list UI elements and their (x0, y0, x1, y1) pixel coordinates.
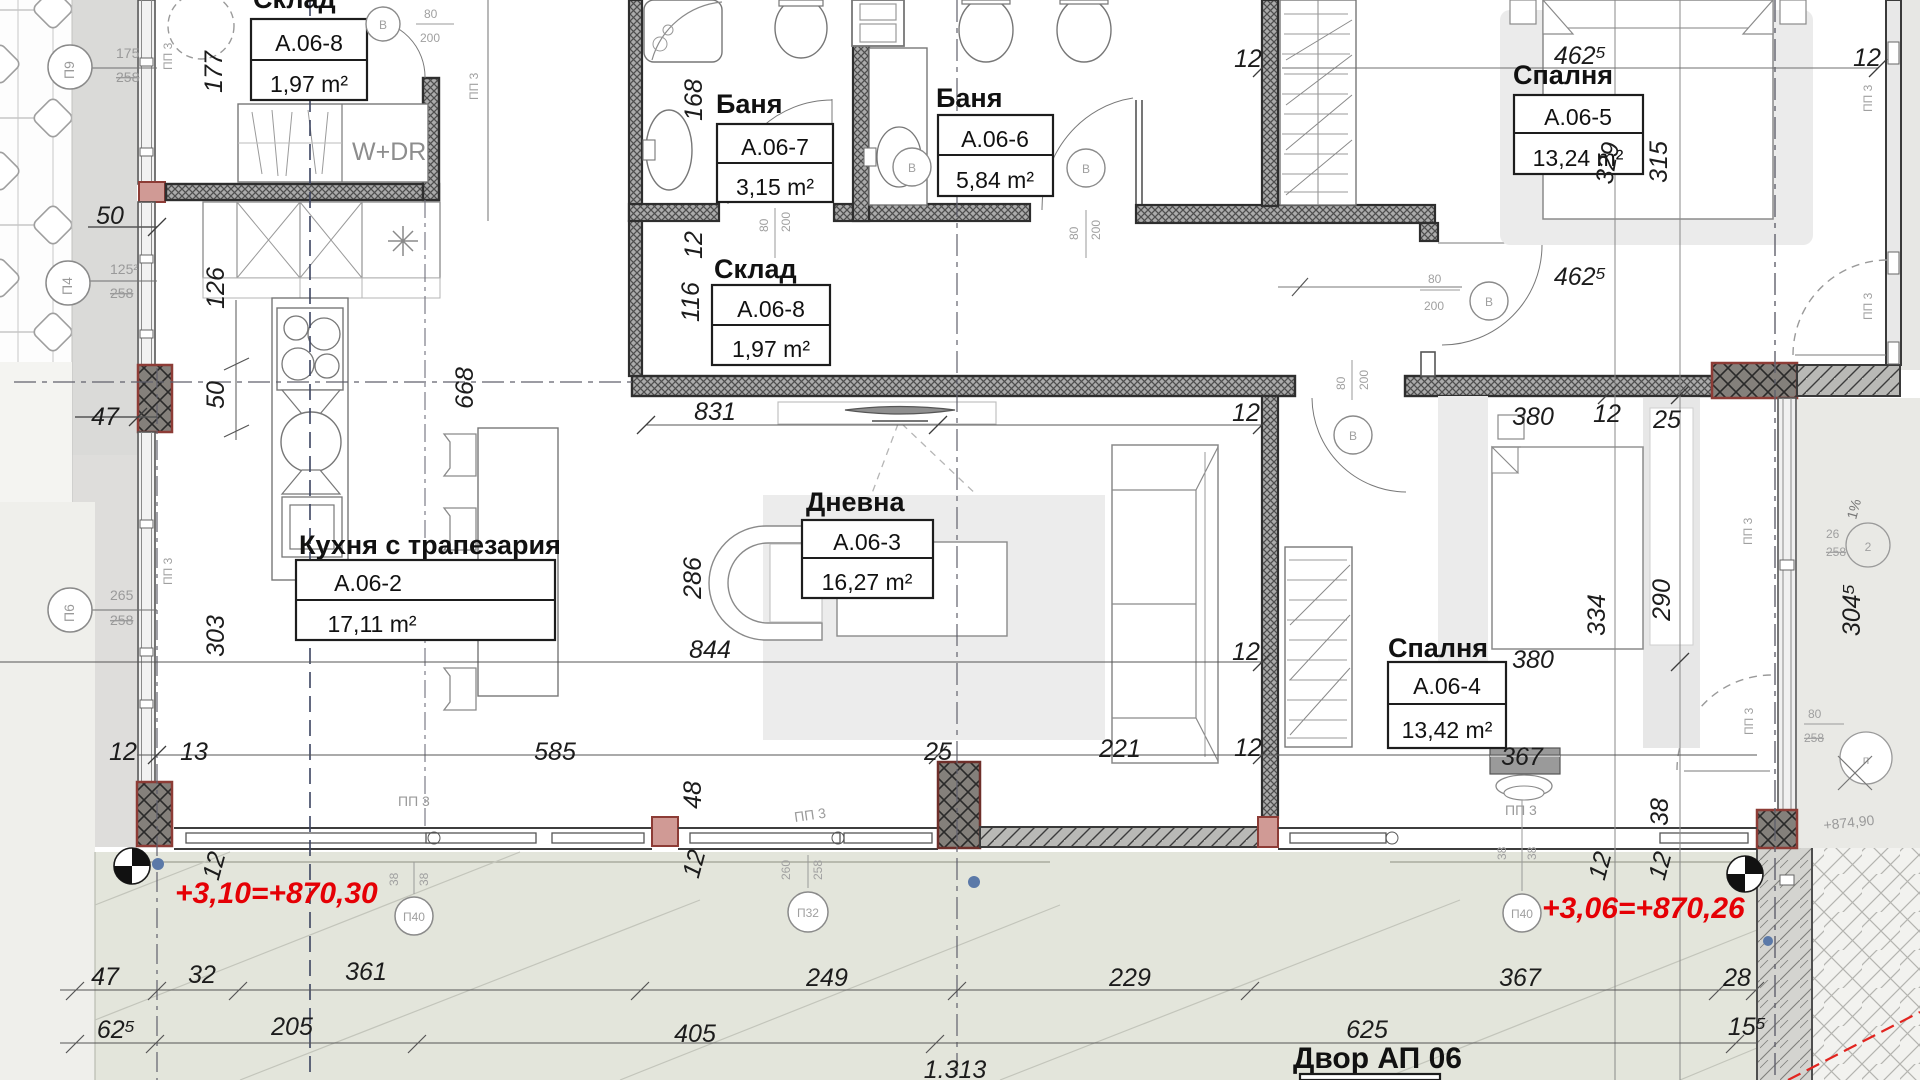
svg-text:Двор АП 06: Двор АП 06 (1293, 1042, 1462, 1075)
svg-text:258: 258 (1826, 545, 1846, 559)
svg-text:462⁵: 462⁵ (1554, 263, 1606, 291)
svg-text:П6: П6 (61, 604, 77, 622)
svg-text:315: 315 (1645, 141, 1673, 183)
svg-text:200: 200 (1424, 299, 1444, 313)
svg-text:126: 126 (202, 267, 230, 309)
svg-text:12: 12 (1234, 45, 1262, 73)
svg-text:380: 380 (1512, 646, 1554, 674)
svg-text:229: 229 (1108, 964, 1151, 992)
svg-text:38: 38 (1525, 846, 1539, 860)
svg-text:258: 258 (110, 612, 134, 628)
svg-text:177: 177 (200, 50, 228, 93)
svg-text:304⁵: 304⁵ (1838, 584, 1866, 636)
svg-text:80: 80 (424, 7, 438, 21)
svg-text:80: 80 (1808, 707, 1822, 721)
svg-text:В: В (1349, 429, 1357, 443)
svg-text:ПП 3: ПП 3 (161, 557, 175, 585)
svg-text:38: 38 (1495, 846, 1509, 860)
svg-text:A.06-2: A.06-2 (334, 570, 402, 596)
svg-text:A.06-6: A.06-6 (961, 126, 1029, 152)
svg-text:625: 625 (1346, 1016, 1388, 1044)
svg-text:Баня: Баня (936, 83, 1003, 113)
svg-text:38: 38 (387, 872, 401, 886)
svg-text:12: 12 (1232, 638, 1260, 666)
svg-text:17,11 m²: 17,11 m² (327, 611, 416, 637)
svg-text:380: 380 (1512, 403, 1554, 431)
svg-text:ПП 3: ПП 3 (1505, 802, 1537, 818)
svg-text:258: 258 (110, 285, 134, 301)
svg-text:Склад: Склад (253, 0, 336, 14)
svg-text:П9: П9 (61, 61, 77, 79)
svg-text:47: 47 (91, 403, 120, 431)
svg-text:+3,10=+870,30: +3,10=+870,30 (175, 877, 378, 910)
svg-text:32: 32 (188, 961, 216, 989)
svg-text:Спалня: Спалня (1388, 633, 1488, 663)
svg-text:844: 844 (689, 636, 731, 664)
svg-text:13,42 m²: 13,42 m² (1402, 717, 1493, 743)
svg-text:A.06-5: A.06-5 (1544, 104, 1612, 130)
svg-text:249: 249 (805, 964, 848, 992)
svg-text:12: 12 (1232, 399, 1260, 427)
svg-text:62⁵: 62⁵ (97, 1016, 135, 1044)
svg-text:831: 831 (694, 398, 736, 426)
svg-text:W+DR: W+DR (352, 138, 426, 166)
svg-text:ПП 3: ПП 3 (1741, 517, 1755, 545)
svg-text:361: 361 (345, 958, 387, 986)
svg-text:П4: П4 (59, 277, 75, 295)
svg-text:168: 168 (680, 79, 708, 121)
svg-text:205: 205 (270, 1013, 313, 1041)
svg-text:В: В (379, 18, 387, 32)
svg-text:+3,06=+870,26: +3,06=+870,26 (1542, 892, 1745, 925)
svg-text:16,27 m²: 16,27 m² (822, 569, 913, 595)
svg-text:A.06-7: A.06-7 (741, 134, 809, 160)
svg-text:265: 265 (110, 587, 134, 603)
svg-text:ПП 3: ПП 3 (1861, 84, 1875, 112)
svg-text:80: 80 (757, 218, 771, 232)
svg-text:12: 12 (1234, 734, 1262, 762)
svg-text:13: 13 (180, 738, 208, 766)
svg-text:В: В (1485, 295, 1493, 309)
svg-text:334: 334 (1583, 594, 1611, 636)
svg-text:В: В (1082, 162, 1090, 176)
svg-text:200: 200 (779, 212, 793, 232)
svg-text:50: 50 (96, 202, 124, 230)
svg-text:15⁵: 15⁵ (1728, 1013, 1766, 1041)
svg-text:80: 80 (1067, 226, 1081, 240)
svg-text:26: 26 (1826, 527, 1840, 541)
svg-text:25: 25 (923, 738, 952, 766)
svg-text:585: 585 (534, 738, 576, 766)
svg-text:12: 12 (1853, 44, 1881, 72)
svg-text:1,97 m²: 1,97 m² (732, 336, 810, 362)
svg-text:50: 50 (202, 381, 230, 409)
svg-text:47: 47 (91, 963, 120, 991)
svg-text:80: 80 (1334, 376, 1348, 390)
svg-text:200: 200 (1357, 370, 1371, 390)
svg-text:290: 290 (1648, 579, 1676, 622)
svg-text:ПП 3: ПП 3 (161, 42, 175, 70)
svg-text:1,97 m²: 1,97 m² (270, 71, 348, 97)
svg-text:ПП 3: ПП 3 (1861, 292, 1875, 320)
svg-text:367: 367 (1499, 964, 1542, 992)
svg-text:ПП 3: ПП 3 (467, 72, 481, 100)
svg-text:125²: 125² (110, 261, 138, 277)
svg-text:286: 286 (679, 557, 707, 600)
svg-text:12: 12 (109, 738, 137, 766)
svg-text:28: 28 (1722, 964, 1751, 992)
svg-text:367: 367 (1501, 743, 1544, 771)
svg-text:668: 668 (451, 367, 479, 409)
svg-text:12: 12 (1593, 400, 1621, 428)
svg-text:221: 221 (1098, 735, 1141, 763)
svg-text:П32: П32 (797, 906, 819, 920)
svg-text:П40: П40 (403, 910, 425, 924)
svg-text:258: 258 (811, 860, 825, 880)
svg-text:258: 258 (116, 69, 140, 85)
svg-text:ПП 3: ПП 3 (1742, 707, 1756, 735)
svg-text:Баня: Баня (716, 89, 783, 119)
svg-text:48: 48 (679, 781, 707, 809)
svg-text:ПП 3: ПП 3 (398, 793, 430, 809)
svg-text:A.06-8: A.06-8 (275, 30, 343, 56)
svg-text:200: 200 (420, 31, 440, 45)
svg-text:303: 303 (202, 615, 230, 657)
svg-text:405: 405 (674, 1020, 716, 1048)
svg-text:462⁵: 462⁵ (1554, 42, 1606, 70)
svg-text:Склад: Склад (714, 254, 797, 284)
svg-text:260: 260 (779, 860, 793, 880)
svg-text:3,15 m²: 3,15 m² (736, 174, 814, 200)
svg-text:A.06-8: A.06-8 (737, 296, 805, 322)
svg-text:80: 80 (1428, 272, 1442, 286)
svg-text:38: 38 (417, 872, 431, 886)
svg-text:38: 38 (1646, 798, 1674, 826)
svg-text:В: В (908, 161, 916, 175)
svg-text:A.06-3: A.06-3 (833, 529, 901, 555)
svg-text:12: 12 (680, 231, 708, 259)
svg-text:П40: П40 (1511, 907, 1533, 921)
svg-text:116: 116 (677, 282, 705, 322)
svg-text:175: 175 (116, 45, 140, 61)
svg-text:2: 2 (1865, 540, 1872, 554)
svg-text:А.06-4: А.06-4 (1413, 673, 1481, 699)
svg-text:258: 258 (1804, 731, 1824, 745)
svg-text:Кухня с трапезария: Кухня с трапезария (299, 530, 561, 560)
svg-text:5,84 m²: 5,84 m² (956, 167, 1034, 193)
svg-text:Дневна: Дневна (806, 487, 905, 517)
svg-text:25: 25 (1652, 406, 1681, 434)
svg-text:200: 200 (1089, 220, 1103, 240)
svg-text:1.313: 1.313 (924, 1056, 987, 1080)
